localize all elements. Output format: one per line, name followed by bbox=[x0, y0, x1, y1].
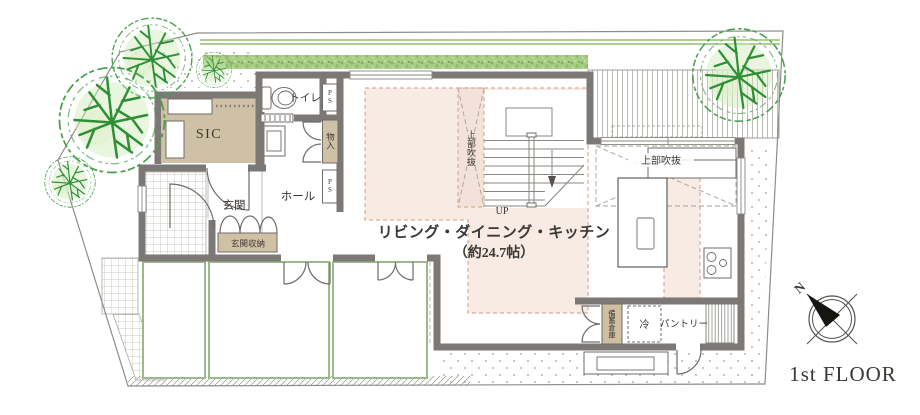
label-up: UP bbox=[496, 206, 509, 217]
tree-icon bbox=[45, 157, 95, 207]
label-ldk-size: （約24.7帖） bbox=[454, 244, 535, 261]
label-pantry: パントリー bbox=[660, 319, 708, 330]
toilet-tank bbox=[262, 87, 271, 109]
label-void-dining: 上部吹抜 bbox=[641, 154, 681, 167]
approach-path-upper bbox=[102, 258, 138, 314]
pantry-shelves bbox=[706, 304, 734, 343]
compass-north-label: N bbox=[791, 279, 808, 297]
label-entrance-storage: 玄関収納 bbox=[231, 239, 265, 249]
label-entrance: 玄関 bbox=[223, 198, 246, 212]
floor-plan-page: SIC トイレ PS 物入 PS 玄関 ホール 玄関収納 上部吹抜 UP リビン… bbox=[0, 0, 920, 415]
label-ldk: リビング・ダイニング・キッチン bbox=[378, 223, 611, 241]
label-toilet: トイレ bbox=[289, 93, 321, 104]
sic-shelf-top bbox=[168, 99, 212, 114]
label-stock-storage: 備蓄倉庫 bbox=[608, 309, 616, 340]
label-fridge: 冷 bbox=[640, 318, 650, 331]
toilet-sliding-door bbox=[261, 114, 293, 122]
label-ps-top: PS bbox=[326, 89, 334, 105]
compass-icon: N bbox=[791, 279, 857, 344]
label-void-stair: 上部吹抜 bbox=[466, 130, 476, 167]
kitchen-island bbox=[618, 178, 667, 267]
sic-shelf-side bbox=[166, 121, 184, 158]
label-sic: SIC bbox=[196, 127, 222, 142]
closet-doors bbox=[303, 122, 321, 162]
entrance-storage-doors bbox=[220, 216, 277, 233]
hedge-line-top bbox=[200, 40, 780, 44]
floor-title: 1st FLOOR bbox=[789, 362, 897, 386]
label-ps-bottom: PS bbox=[326, 178, 334, 194]
label-closet: 物入 bbox=[326, 132, 336, 150]
tree-icon bbox=[693, 29, 785, 121]
floor-plan-canvas: SIC トイレ PS 物入 PS 玄関 ホール 玄関収納 上部吹抜 UP リビン… bbox=[0, 0, 920, 415]
tree-icon bbox=[60, 68, 165, 173]
label-hall: ホール bbox=[281, 190, 316, 203]
hedge-strip bbox=[203, 55, 588, 69]
washstand bbox=[263, 126, 285, 156]
